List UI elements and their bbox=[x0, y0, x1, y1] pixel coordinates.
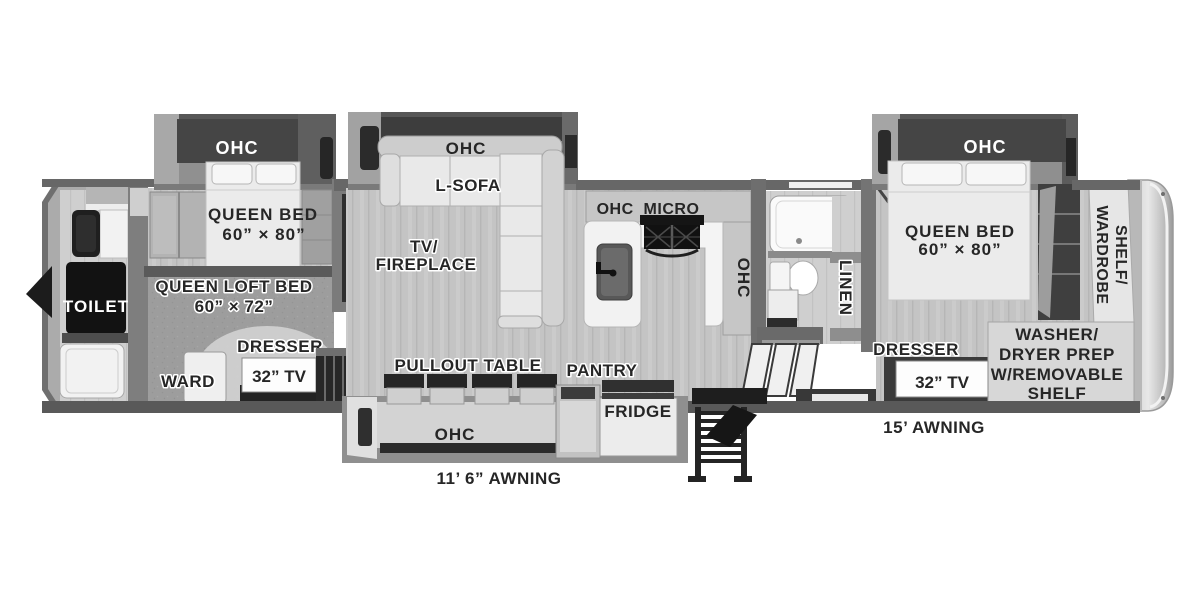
svg-text:FRIDGE: FRIDGE bbox=[604, 402, 671, 421]
svg-text:SHELF/: SHELF/ bbox=[1112, 225, 1129, 285]
svg-text:WARDROBE: WARDROBE bbox=[1093, 205, 1110, 304]
svg-text:W/REMOVABLE: W/REMOVABLE bbox=[991, 365, 1124, 384]
svg-text:11’ 6” AWNING: 11’ 6” AWNING bbox=[437, 469, 562, 488]
svg-text:DRESSER: DRESSER bbox=[237, 337, 323, 356]
svg-text:TV/: TV/ bbox=[410, 237, 438, 256]
svg-text:DRESSER: DRESSER bbox=[873, 340, 959, 359]
svg-text:TOILET: TOILET bbox=[63, 297, 129, 316]
svg-text:SHELF: SHELF bbox=[1028, 384, 1087, 403]
svg-text:OHC: OHC bbox=[435, 425, 476, 444]
svg-text:32” TV: 32” TV bbox=[252, 367, 307, 386]
svg-text:L-SOFA: L-SOFA bbox=[435, 176, 500, 195]
svg-text:60” × 80”: 60” × 80” bbox=[918, 240, 1001, 259]
svg-text:OHC: OHC bbox=[216, 138, 259, 158]
svg-text:60” × 80”: 60” × 80” bbox=[222, 225, 305, 244]
svg-text:OHC: OHC bbox=[964, 137, 1007, 157]
svg-text:PULLOUT TABLE: PULLOUT TABLE bbox=[395, 356, 542, 375]
svg-text:LINEN: LINEN bbox=[836, 260, 855, 316]
svg-text:DRYER PREP: DRYER PREP bbox=[999, 345, 1115, 364]
svg-text:60” × 72”: 60” × 72” bbox=[195, 297, 274, 316]
svg-text:QUEEN BED: QUEEN BED bbox=[905, 222, 1015, 241]
svg-text:OHC: OHC bbox=[734, 258, 753, 299]
svg-text:OHC: OHC bbox=[446, 139, 487, 158]
svg-text:FIREPLACE: FIREPLACE bbox=[376, 255, 477, 274]
svg-text:15’ AWNING: 15’ AWNING bbox=[883, 418, 985, 437]
svg-text:PANTRY: PANTRY bbox=[567, 361, 638, 380]
svg-text:QUEEN BED: QUEEN BED bbox=[208, 205, 318, 224]
svg-text:QUEEN LOFT BED: QUEEN LOFT BED bbox=[155, 277, 312, 296]
svg-text:WASHER/: WASHER/ bbox=[1015, 325, 1099, 344]
svg-text:WARD: WARD bbox=[161, 372, 215, 391]
svg-text:32” TV: 32” TV bbox=[915, 373, 970, 392]
